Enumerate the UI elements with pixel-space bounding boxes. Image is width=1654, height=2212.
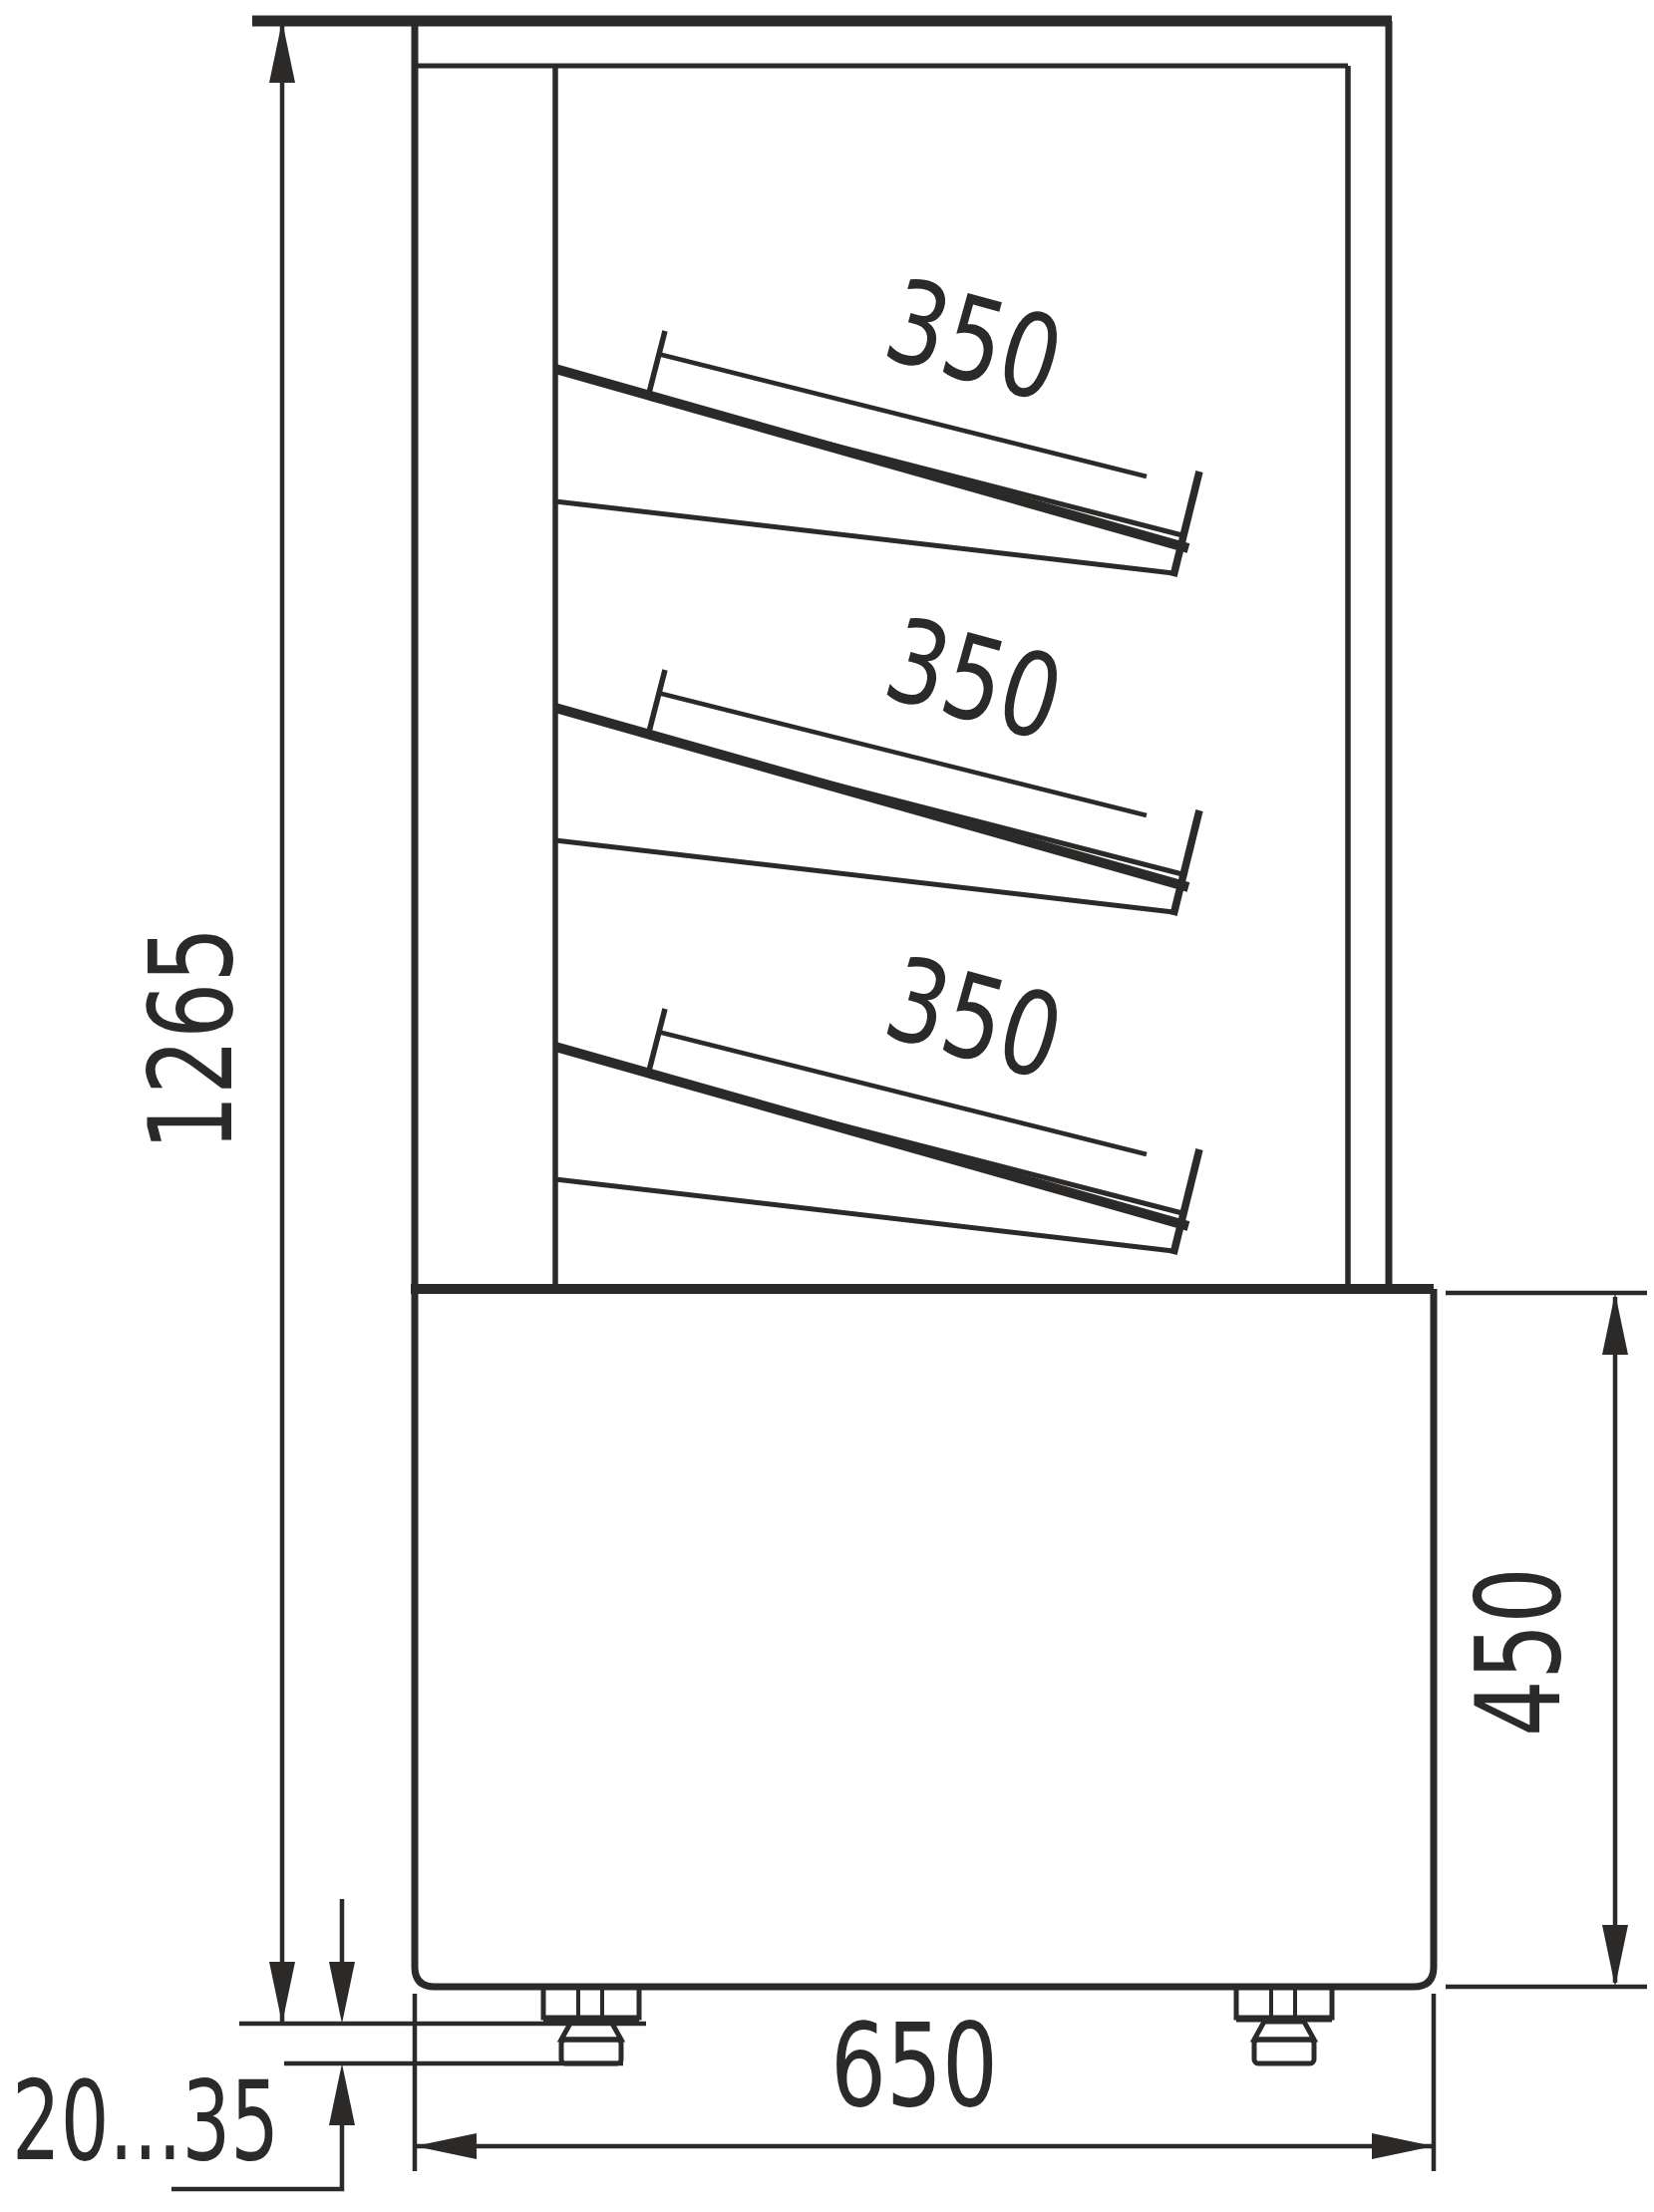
feet-range-label: 20...35 <box>12 2057 279 2185</box>
shelf-top: 350 <box>555 252 1199 576</box>
technical-drawing-page: 350 350 350 1265 20...35 <box>0 0 1654 2212</box>
arrowhead-right <box>1372 2133 1434 2159</box>
arrowhead-down <box>269 1962 295 2024</box>
shelf-depth-label: 350 <box>872 252 1077 429</box>
foot-pad <box>561 2040 621 2063</box>
display-case-side-view-drawing: 350 350 350 1265 20...35 <box>0 0 1654 2212</box>
foot-stem <box>1236 1987 1332 2018</box>
shelf-front-lip <box>1173 472 1199 576</box>
shelf-middle: 350 <box>555 591 1199 915</box>
foot-cone <box>1254 2022 1314 2040</box>
shelf-dimension-tick <box>648 331 665 397</box>
base-width-label: 650 <box>830 1998 998 2132</box>
shelf-dimension-tick <box>648 670 665 736</box>
foot-reference-lines <box>239 2024 646 2063</box>
overall-height-label: 1265 <box>124 927 258 1151</box>
foot-stem <box>543 1987 639 2018</box>
arrowhead-up <box>329 2063 355 2125</box>
shelf-depth-label: 350 <box>872 591 1077 768</box>
foot-pad <box>1254 2040 1314 2063</box>
dimension-feet-range: 20...35 <box>12 1899 355 2189</box>
shelf-underside-line <box>555 840 1173 912</box>
shelf-depth-label: 350 <box>872 930 1077 1106</box>
shelf-underside-line <box>555 501 1173 573</box>
shelf-front-lip <box>1173 810 1199 915</box>
arrowhead-down <box>1602 1925 1628 1987</box>
shelf-dimension-tick <box>648 1009 665 1075</box>
arrowhead-up <box>1602 1293 1628 1355</box>
arrowhead-down <box>329 1962 355 2024</box>
foot-stem-thread-lines <box>1271 1989 1295 2018</box>
base-outline <box>415 1289 1434 1987</box>
leveling-foot-right <box>1236 1987 1332 2063</box>
foot-stem-thread-lines <box>578 1989 602 2018</box>
arrowhead-left <box>415 2133 477 2159</box>
shelf-underside-line <box>555 1179 1173 1251</box>
base-height-label: 450 <box>1450 1567 1587 1737</box>
dimension-overall-height: 1265 <box>124 21 295 2024</box>
arrowhead-up <box>269 21 295 83</box>
cabinet-outline <box>252 21 1434 1987</box>
shelf-bottom: 350 <box>555 930 1199 1254</box>
dimension-base-height: 450 <box>1446 1293 1647 1987</box>
shelf-front-lip <box>1173 1149 1199 1254</box>
